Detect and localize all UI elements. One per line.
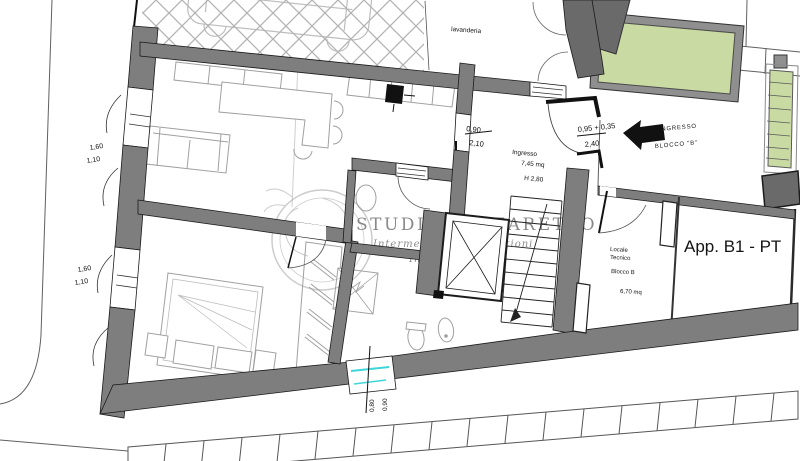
toilet [406,322,426,351]
room-label-tecnico: Tecnico [610,255,631,262]
locale-door-leaf [599,191,607,233]
dim-window1-sill: 1,10 [86,156,101,165]
room-label-blocco-b: Blocco B [611,269,635,276]
small-pillar [774,55,787,68]
bath1-left-wall [343,170,356,243]
dim-window2-width: 1,60 [77,265,92,274]
pillow [215,347,252,373]
entrance-label-line2: BLOCCO "B" [655,140,699,150]
dim-window2-sill: 1,10 [74,278,89,287]
tilted-landing [762,171,800,209]
dim-entrance-door-height: 2,40 [584,139,599,149]
dim-window-bottom-height: 0,90 [382,398,389,411]
window-bottom [346,356,396,394]
top-right-boundary [746,0,747,46]
stove-icon [385,84,404,104]
elevator-corner-block [433,290,444,299]
lavanderia-left-line [425,1,429,70]
room-area-locale: 6,70 mq [620,289,642,296]
strip-green [768,70,793,168]
bedroom-door-leaf [288,237,296,268]
room-area-ingresso: 7,45 mq [521,160,545,169]
green-courtyard [586,0,787,102]
bath1-threshold [396,163,428,180]
stair-arrow-icon [510,308,521,322]
room-label-locale: Locale [610,247,629,254]
ingresso-left-wall-lower [449,150,469,220]
ingresso-left-wall-upper [456,63,475,115]
entrance-label-line1: INGRESSO [659,124,697,133]
room-height-ingresso: H 2,80 [524,175,544,184]
dim-window1-width: 1,60 [89,143,104,152]
lavanderia-door-arc-bottom [538,52,568,81]
left-wall-upper [128,26,158,90]
courtyard-path-line-1 [740,46,800,52]
window-left-upper [123,87,153,148]
sidewalk-tiles [128,391,798,461]
dim-window-bottom-width: 0,80 [369,399,376,412]
locale-door-arc [599,205,646,233]
exterior-stair-strip [762,64,800,330]
left-property-line [0,0,52,404]
bedroom-door-gap [296,222,326,240]
bed [157,273,263,379]
threshold-top [530,82,566,99]
sofa [146,126,230,173]
bath1-door-arc [398,177,430,209]
lavanderia-door-arc-top [533,2,566,35]
apartment-title: App. B1 - PT [684,237,781,256]
bidet [437,317,455,343]
entrance-door-arc [548,104,580,153]
nightstand [145,333,168,358]
floor-line [292,62,298,207]
radiator [660,201,677,247]
floor-plan-svg: STUDIO LAZZARETTO Intermediazioni e Gest… [0,0,800,461]
left-wall-middle [115,145,148,250]
room-label-lavanderia: lavanderia [451,26,482,35]
dim-interior-door-height: 2,10 [469,138,485,149]
bottom-left-curb-line [0,440,128,451]
room-label-ingresso: Ingresso [512,149,538,158]
dim-entrance-door-width: 0,95 + 0,35 [577,121,615,134]
wall-stub-top-left [134,0,137,27]
window-left-lower [110,247,140,310]
entrance-wall [546,98,599,117]
floor-plan-image: STUDIO LAZZARETTO Intermediazioni e Gest… [0,0,800,461]
dining-counter [219,82,343,159]
